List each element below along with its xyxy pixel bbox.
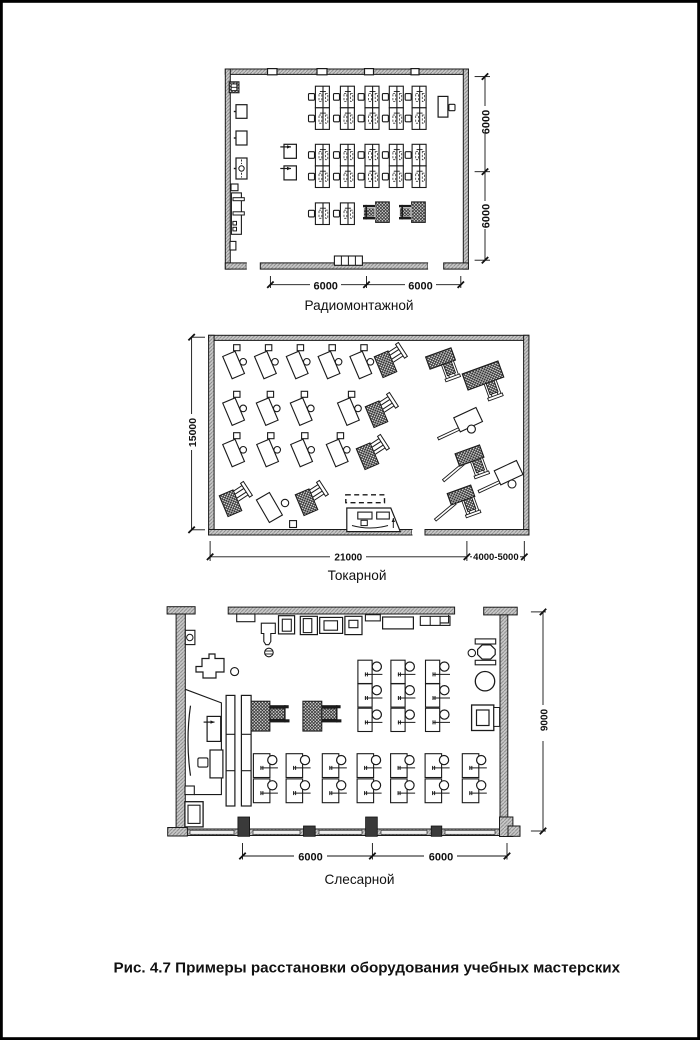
svg-text:Токарной: Токарной	[328, 568, 387, 583]
svg-text:6000: 6000	[298, 852, 322, 864]
svg-text:Радиомонтажной: Радиомонтажной	[304, 298, 413, 313]
svg-text:6000: 6000	[313, 280, 337, 292]
svg-text:Рис. 4.7 Примеры расстановки о: Рис. 4.7 Примеры расстановки оборудовани…	[113, 959, 620, 976]
svg-text:6000: 6000	[480, 110, 492, 134]
svg-text:6000: 6000	[408, 280, 432, 292]
svg-text:15000: 15000	[187, 418, 199, 447]
svg-text:6000: 6000	[429, 852, 453, 864]
svg-text:9000: 9000	[540, 708, 551, 731]
svg-text:Слесарной: Слесарной	[325, 872, 395, 887]
svg-text:6000: 6000	[480, 204, 492, 228]
svg-text:21000: 21000	[334, 552, 362, 563]
svg-text:4000-5000: 4000-5000	[473, 552, 518, 563]
